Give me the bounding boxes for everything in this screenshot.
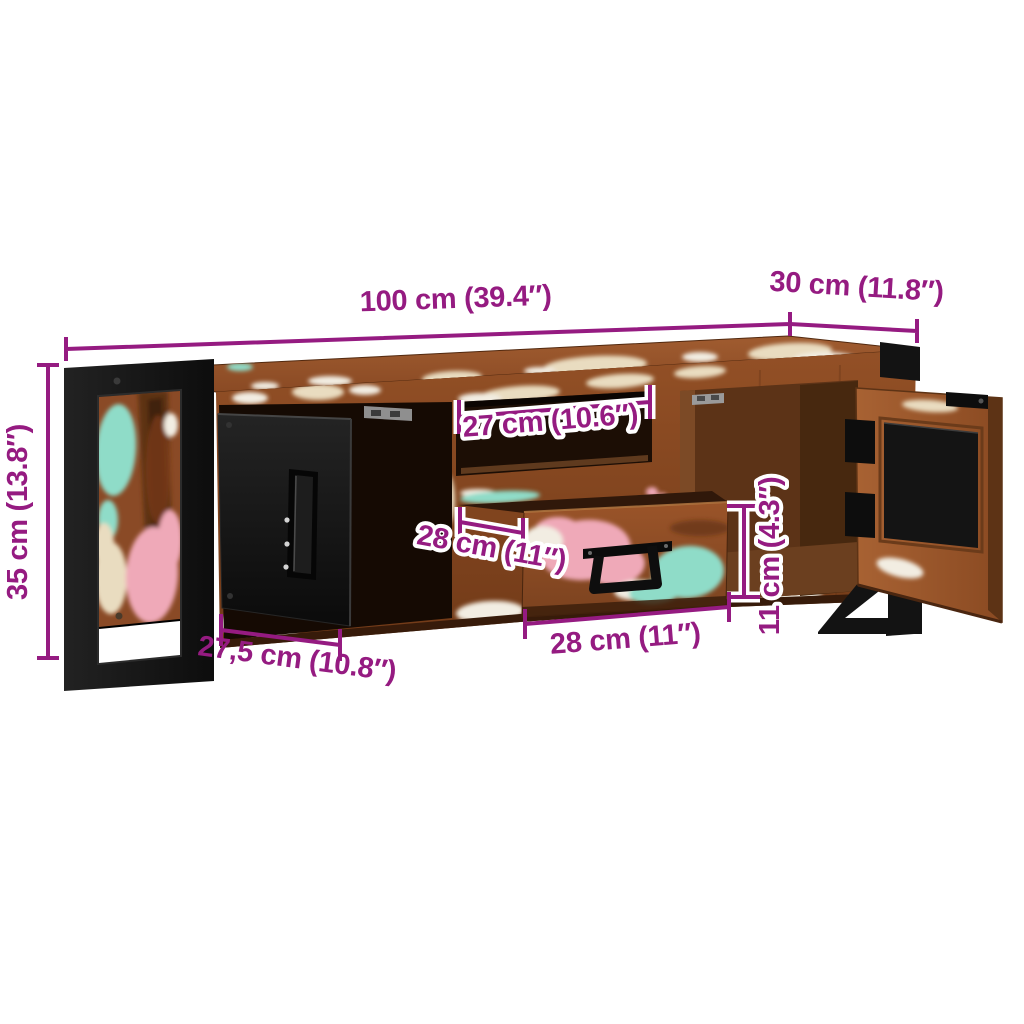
latch-pin — [979, 399, 984, 404]
frame-screw — [114, 378, 121, 385]
hinge-icon — [692, 393, 724, 405]
paint-patch — [227, 363, 253, 371]
paint-patch — [164, 413, 178, 437]
hinge-slot — [390, 411, 400, 417]
dim-height-line — [37, 365, 59, 658]
dim-depth-label: 30 cm (11.8″) — [769, 266, 945, 309]
dim-width-label: 100 cm (39.4″) — [359, 280, 552, 319]
hinge-icon — [845, 492, 875, 538]
hinge-slot — [711, 395, 719, 400]
dim-drawer-height-label: 11 cm (4.3″) — [754, 477, 786, 636]
furniture-diagram: 100 cm (39.4″) 30 cm (11.8″) 35 cm (13.8… — [0, 0, 1024, 1024]
hinge-slot — [697, 396, 705, 401]
scuff-mark — [670, 520, 730, 536]
handle-screw — [588, 551, 592, 555]
paint-patch — [158, 510, 182, 570]
dim-height: 35 cm (13.8″) — [2, 365, 59, 658]
right-door-panel — [884, 423, 978, 548]
paint-patch — [682, 352, 718, 362]
left-frame-leg — [64, 359, 214, 691]
handle-screw — [664, 544, 668, 548]
dim-height-label: 35 cm (13.8″) — [2, 424, 34, 600]
right-frame-top-cap — [880, 342, 920, 381]
paint-patch — [232, 392, 268, 404]
dim-drawer-width-label: 28 cm (11″) — [549, 617, 702, 661]
hinge-icon — [845, 419, 875, 464]
handle-screw — [283, 564, 288, 569]
handle-screw — [284, 541, 289, 546]
left-door — [218, 414, 351, 626]
door-screw — [226, 422, 232, 428]
handle-screw — [284, 517, 289, 522]
frame-screw — [116, 613, 123, 620]
door-edge-highlight — [350, 419, 351, 626]
right-door — [845, 388, 1002, 622]
dim-depth: 30 cm (11.8″) — [769, 266, 945, 343]
paint-patch — [349, 385, 381, 395]
door-screw — [227, 593, 233, 599]
product-dimension-diagram: 100 cm (39.4″) 30 cm (11.8″) 35 cm (13.8… — [0, 0, 1024, 1024]
hinge-slot — [371, 410, 381, 416]
right-door-edge — [988, 397, 1002, 622]
